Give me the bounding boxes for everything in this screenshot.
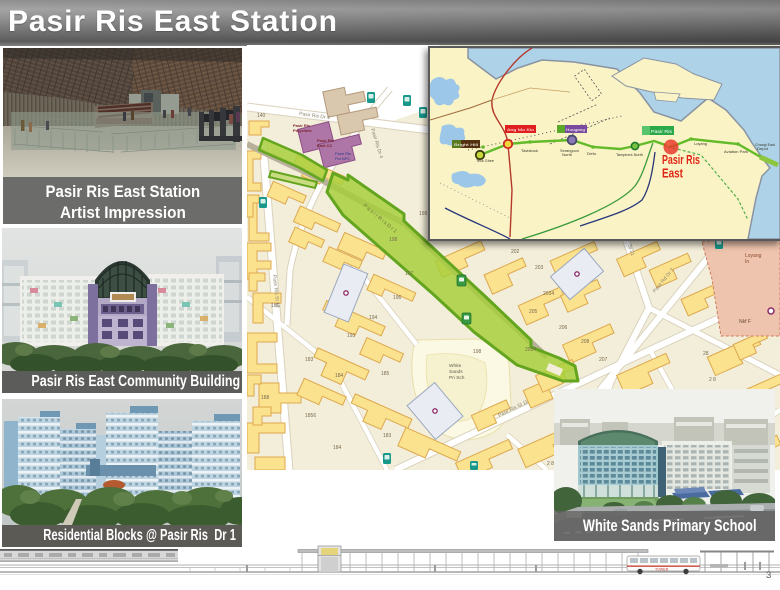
svg-text:2034: 2034 <box>525 347 536 353</box>
svg-text:2034: 2034 <box>543 291 554 297</box>
svg-text:Nkf F: Nkf F <box>739 319 751 325</box>
svg-text:207: 207 <box>599 357 608 363</box>
svg-text:196: 196 <box>393 295 402 301</box>
svg-text:Aviation Park: Aviation Park <box>724 150 748 154</box>
svg-text:Depot: Depot <box>757 147 769 151</box>
svg-text:Loyang: Loyang <box>694 142 707 146</box>
svg-text:202: 202 <box>511 249 520 255</box>
svg-text:2 8: 2 8 <box>709 377 716 383</box>
svg-text:Pol NPC: Pol NPC <box>335 156 350 161</box>
svg-text:East: East <box>662 166 684 181</box>
svg-text:198: 198 <box>389 237 398 243</box>
svg-text:183: 183 <box>383 433 392 439</box>
svg-text:188: 188 <box>261 395 270 401</box>
svg-text:28: 28 <box>703 351 709 357</box>
svg-text:203: 203 <box>535 265 544 271</box>
svg-text:185: 185 <box>381 371 390 377</box>
svg-text:205: 205 <box>529 309 538 315</box>
svg-text:TOWER: TOWER <box>655 568 669 572</box>
svg-text:199: 199 <box>419 211 428 217</box>
svg-text:Bright Hill: Bright Hill <box>454 142 478 147</box>
svg-text:Sands: Sands <box>449 369 463 375</box>
svg-text:Pri Sch: Pri Sch <box>449 375 465 381</box>
svg-text:Polyclinic: Polyclinic <box>293 128 312 133</box>
svg-text:North: North <box>562 153 572 157</box>
svg-text:140: 140 <box>257 113 266 119</box>
svg-text:White: White <box>449 363 462 369</box>
svg-text:183: 183 <box>305 357 314 363</box>
svg-text:197: 197 <box>405 271 414 277</box>
svg-text:208: 208 <box>581 339 590 345</box>
svg-text:184: 184 <box>335 373 344 379</box>
svg-text:Defu: Defu <box>587 152 596 156</box>
svg-text:Tavistock: Tavistock <box>521 149 538 153</box>
svg-text:184: 184 <box>333 445 342 451</box>
svg-text:186: 186 <box>271 303 280 309</box>
svg-text:Tampines North: Tampines North <box>616 153 643 157</box>
svg-text:Teck Ghee: Teck Ghee <box>476 159 494 163</box>
svg-text:1856: 1856 <box>305 413 316 419</box>
svg-text:Pasir Ris: Pasir Ris <box>651 129 673 134</box>
svg-text:Hougang: Hougang <box>566 127 585 132</box>
svg-text:In: In <box>745 259 749 265</box>
svg-text:198: 198 <box>473 349 482 355</box>
svg-text:206: 206 <box>559 325 568 331</box>
svg-text:East CC: East CC <box>317 143 332 148</box>
svg-text:194: 194 <box>369 315 378 321</box>
svg-text:193: 193 <box>347 333 356 339</box>
svg-text:Ang Mo Kio: Ang Mo Kio <box>507 127 535 132</box>
